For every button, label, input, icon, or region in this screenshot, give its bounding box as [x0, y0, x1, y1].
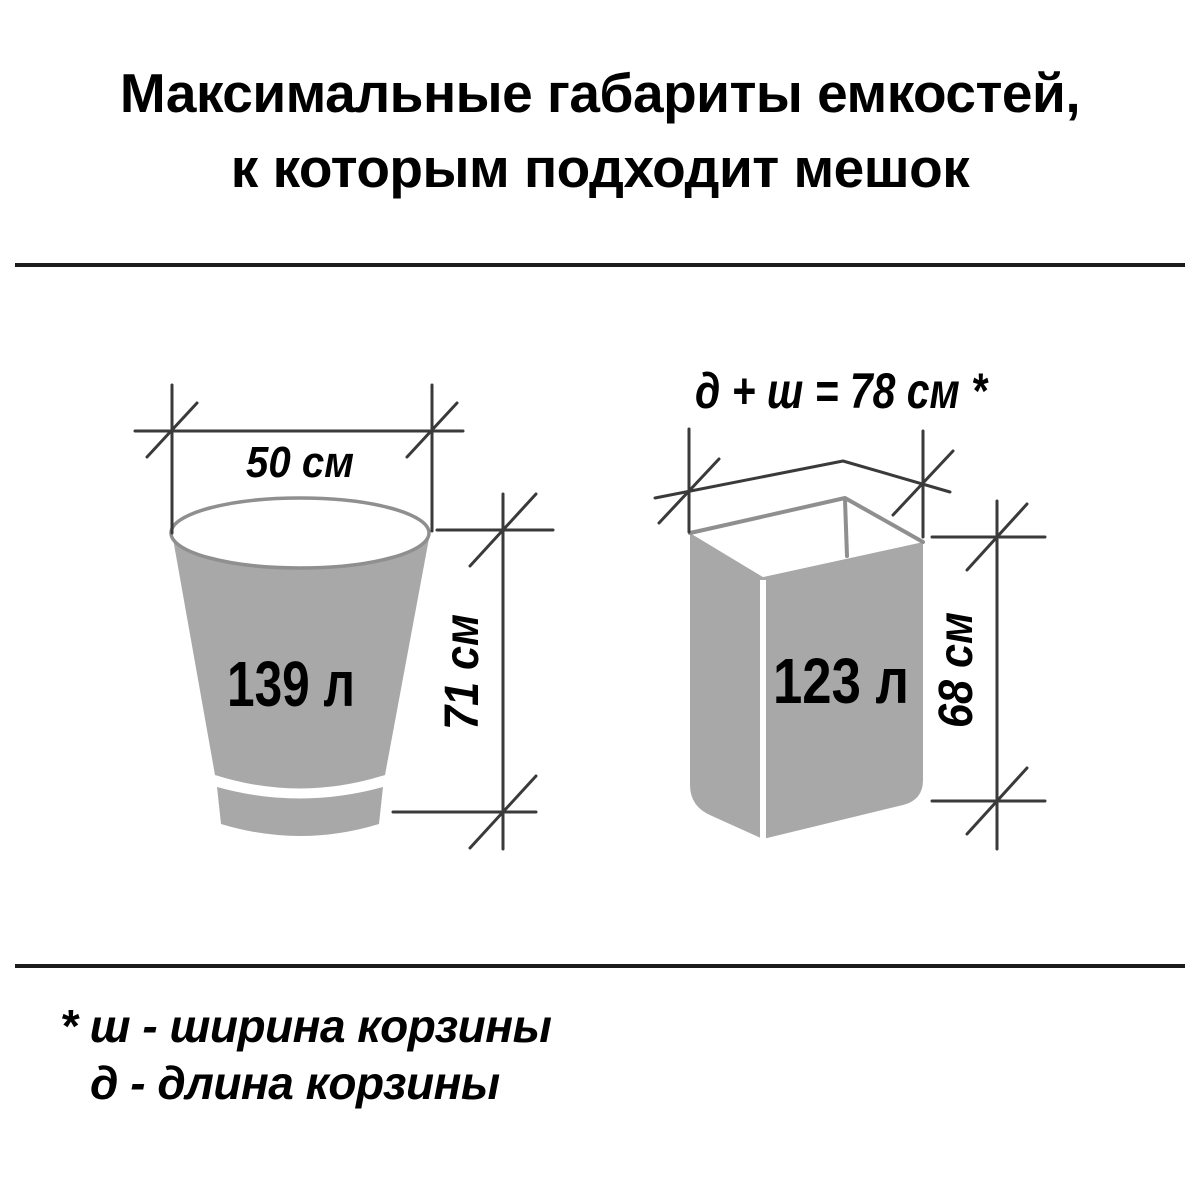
box-diagram: 123 л д + ш = 78 см * 68 см: [655, 363, 1045, 849]
bucket-opening: [171, 498, 429, 568]
infographic-page: Максимальные габариты емкостей, к которы…: [0, 0, 1200, 1200]
bucket-diagram: 139 л 50 см 71 см: [135, 385, 553, 849]
bucket-width-label: 50 см: [246, 438, 354, 487]
footnote-line-2: д - длина корзины: [60, 1055, 551, 1112]
box-top-label: д + ш = 78 см *: [695, 363, 989, 419]
bucket-volume-label: 139 л: [227, 648, 355, 720]
bucket-height-label: 71 см: [436, 614, 489, 730]
box-left-face: [690, 533, 763, 839]
footnote-line-1: * ш - ширина корзины: [60, 998, 551, 1055]
footnote: * ш - ширина корзины д - длина корзины: [60, 998, 551, 1112]
bucket-base: [217, 787, 383, 836]
bottom-divider: [15, 964, 1185, 968]
box-height-dimension: 68 см: [930, 501, 1045, 849]
box-inner-corner-seam: [845, 500, 847, 556]
box-height-label: 68 см: [930, 612, 983, 728]
box-volume-label: 123 л: [773, 645, 909, 717]
